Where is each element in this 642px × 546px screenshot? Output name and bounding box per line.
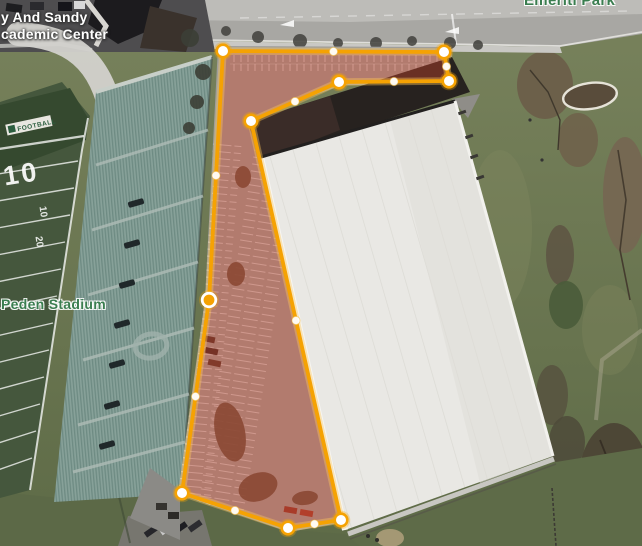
polygon-vertex[interactable]: [333, 76, 346, 89]
peden-stadium-label[interactable]: Peden Stadium: [1, 296, 106, 312]
polygon-midpoint-handle[interactable]: [191, 392, 199, 400]
academic-center-label[interactable]: y And Sandy cademic Center: [1, 9, 108, 43]
polygon-midpoint-handle[interactable]: [291, 97, 299, 105]
polygon-vertex[interactable]: [217, 45, 230, 58]
polygon-midpoint-handle[interactable]: [212, 171, 220, 179]
polygon-midpoint-handle[interactable]: [329, 47, 337, 55]
polygon-vertex[interactable]: [438, 46, 451, 59]
polygon-vertex-selected[interactable]: [202, 293, 216, 307]
polygon-vertex[interactable]: [176, 487, 189, 500]
satellite-map-canvas[interactable]: 10 10 20 FOOTBALL: [0, 0, 642, 546]
academic-center-label-line1: y And Sandy: [1, 9, 108, 26]
emeriti-park-label[interactable]: Emeriti Park: [524, 0, 615, 9]
polygon-midpoint-handle[interactable]: [292, 316, 300, 324]
polygon-vertex[interactable]: [443, 75, 456, 88]
polygon-midpoint-handle[interactable]: [231, 506, 239, 514]
polygon-overlay: [0, 0, 642, 546]
polygon-vertex[interactable]: [282, 522, 295, 535]
polygon-midpoint-handle[interactable]: [310, 520, 318, 528]
polygon-midpoint-handle[interactable]: [390, 77, 398, 85]
polygon-vertex[interactable]: [245, 115, 258, 128]
polygon-midpoint-handle[interactable]: [442, 62, 450, 70]
polygon-vertex[interactable]: [335, 514, 348, 527]
academic-center-label-line2: cademic Center: [1, 26, 108, 43]
